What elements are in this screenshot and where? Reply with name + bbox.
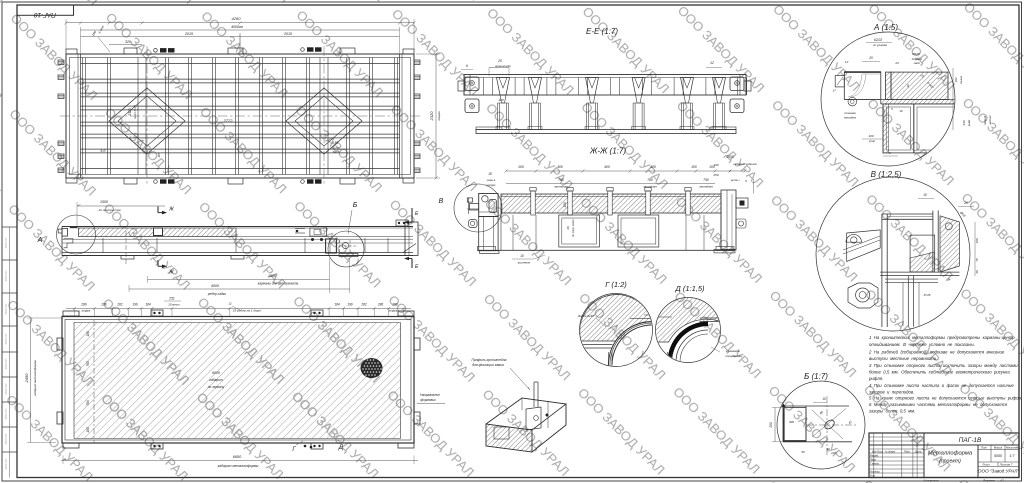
svg-text:2320: 2320 <box>429 111 434 122</box>
svg-text:б=45: б=45 <box>924 293 931 297</box>
svg-text:стенная: стенная <box>844 111 856 115</box>
svg-text:Г (1:2): Г (1:2) <box>605 280 627 289</box>
svg-text:А (1:5): А (1:5) <box>873 23 898 32</box>
svg-text:Разраб.: Разраб. <box>870 455 879 458</box>
svg-text:2450: 2450 <box>24 373 29 384</box>
svg-text:320: 320 <box>125 40 131 44</box>
svg-text:10 мест: 10 мест <box>168 303 180 307</box>
svg-text:ПАГ-18: ПАГ-18 <box>34 11 56 18</box>
svg-text:4000вн: 4000вн <box>231 25 243 29</box>
svg-text:Б: Б <box>353 202 358 209</box>
svg-text:Б (1:7): Б (1:7) <box>804 372 828 381</box>
svg-text:780: 780 <box>647 178 653 182</box>
svg-text:750: 750 <box>703 178 709 182</box>
svg-text:20: 20 <box>868 56 873 60</box>
svg-text:настил: настил <box>989 115 992 125</box>
svg-text:4000: 4000 <box>211 284 219 288</box>
svg-text:дата подп: дата подп <box>5 408 8 420</box>
svg-text:180: 180 <box>86 427 90 433</box>
svg-text:А: А <box>37 237 43 244</box>
svg-text:зазоров и перепадов.: зазоров и перепадов. <box>868 390 914 395</box>
svg-text:б=10: б=10 <box>333 150 340 154</box>
svg-text:Пров.: Пров. <box>870 459 877 462</box>
svg-text:5050: 5050 <box>994 454 1002 458</box>
svg-text:250: 250 <box>712 173 718 177</box>
svg-text:2000: 2000 <box>725 155 733 159</box>
svg-text:спецификац.: спецификац. <box>725 354 743 358</box>
svg-text:закладная: закладная <box>698 185 713 189</box>
svg-text:Утв.: Утв. <box>870 475 876 478</box>
svg-text:40: 40 <box>975 270 979 274</box>
svg-text:6-б: 6-б <box>101 149 106 153</box>
svg-text:2320: 2320 <box>128 108 132 117</box>
svg-text:2 На рабочей (собираемой) подо: 2 На рабочей (собираемой) подошве не доп… <box>868 350 1005 355</box>
svg-text:откидыванием. В чертеже условн: откидыванием. В чертеже условно не показ… <box>869 342 975 347</box>
svg-text:12: 12 <box>845 60 849 64</box>
svg-text:рифра: рифра <box>388 309 398 313</box>
svg-text:780: 780 <box>86 400 90 406</box>
svg-text:дата подп: дата подп <box>5 433 8 445</box>
svg-text:Е: Е <box>415 211 419 217</box>
svg-text:дата подп: дата подп <box>5 333 8 345</box>
svg-text:дата подп: дата подп <box>5 270 8 282</box>
svg-text:6 Между разъемными частями мет: 6 Между разъемными частями металлоформы … <box>869 402 1008 407</box>
svg-text:карманы для автозахвата: карманы для автозахвата <box>258 282 299 286</box>
svg-text:до центра тяж.: до центра тяж. <box>99 208 122 212</box>
svg-text:12: 12 <box>710 61 714 65</box>
svg-text:Лит: Лит <box>980 446 987 450</box>
svg-text:дата подп: дата подп <box>5 303 8 315</box>
svg-text:дата подп: дата подп <box>5 237 8 249</box>
svg-text:до опор. полос: до опор. полос <box>571 218 575 237</box>
svg-text:риме: риме <box>968 119 971 127</box>
svg-text:3 При стыковке опорного листа: 3 При стыковке опорного листа исключить … <box>869 363 1018 368</box>
svg-text:2772: 2772 <box>223 118 234 123</box>
svg-text:№ докум.: № докум. <box>885 451 896 454</box>
svg-text:габарит металлоформы: габарит металлоформы <box>218 464 259 468</box>
svg-text:400: 400 <box>557 165 563 169</box>
svg-text:4260: 4260 <box>232 16 242 21</box>
svg-text:180: 180 <box>86 331 90 337</box>
svg-text:Ø100: Ø100 <box>911 52 920 56</box>
svg-text:в размеры: в размеры <box>726 349 741 353</box>
svg-text:12: 12 <box>228 302 232 306</box>
svg-text:зазоры более 0,5 мм.: зазоры более 0,5 мм. <box>868 409 915 414</box>
svg-text:20: 20 <box>963 201 968 205</box>
svg-text:Дата: Дата <box>914 451 922 454</box>
svg-text:Лист: Лист <box>876 451 883 454</box>
svg-text:10: 10 <box>520 254 524 258</box>
svg-text:20: 20 <box>497 59 502 63</box>
svg-text:свед.: свед. <box>914 61 921 65</box>
svg-text:2015: 2015 <box>184 32 193 36</box>
svg-text:10: 10 <box>923 193 927 197</box>
svg-text:100: 100 <box>868 134 873 138</box>
svg-text:ООО "Завод УРАЛ": ООО "Завод УРАЛ" <box>978 469 1020 474</box>
svg-text:Н.контр.: Н.контр. <box>870 471 880 474</box>
svg-text:184: 184 <box>334 303 340 307</box>
svg-text:1 На кронштейнах металлоформы: 1 На кронштейнах металлоформы предусмотр… <box>869 335 1015 340</box>
svg-text:Подп.: Подп. <box>904 451 911 454</box>
svg-text:100: 100 <box>975 238 979 243</box>
svg-text:100: 100 <box>518 165 524 169</box>
svg-text:780: 780 <box>86 361 90 367</box>
svg-text:габарит изделия: габарит изделия <box>733 162 757 166</box>
svg-text:Копировал: Копировал <box>924 479 939 483</box>
svg-text:Профиль кронштейна: Профиль кронштейна <box>472 358 507 362</box>
svg-text:габарит: габарит <box>209 378 223 382</box>
svg-text:251: 251 <box>168 297 175 301</box>
svg-text:Т.контр.: Т.контр. <box>870 463 880 466</box>
svg-text:лист б=10: лист б=10 <box>133 105 137 120</box>
svg-text:286: 286 <box>377 303 384 307</box>
svg-text:286: 286 <box>80 303 87 307</box>
svg-text:добавир: добавир <box>912 57 923 61</box>
svg-text:дата подп: дата подп <box>5 458 8 470</box>
svg-text:усиление: усиление <box>517 261 531 265</box>
svg-text:16: 16 <box>899 109 903 113</box>
svg-text:Металлоформа: Металлоформа <box>928 451 973 457</box>
svg-text:общая: общая <box>437 111 441 121</box>
svg-text:100: 100 <box>498 98 503 102</box>
svg-text:10: 10 <box>822 397 826 401</box>
svg-text:30: 30 <box>826 447 830 451</box>
svg-text:дата подп: дата подп <box>5 383 8 395</box>
svg-text:286: 286 <box>391 303 398 307</box>
svg-text:40: 40 <box>566 226 570 230</box>
svg-text:62/22: 62/22 <box>874 38 882 42</box>
svg-text:120°: 120° <box>831 451 838 455</box>
svg-text:6000: 6000 <box>212 371 220 375</box>
svg-text:газы в: газы в <box>487 178 496 182</box>
svg-text:Масса: Масса <box>994 446 1003 450</box>
svg-text:24: 24 <box>946 278 951 282</box>
svg-text:150: 150 <box>563 202 567 208</box>
svg-text:Ж-Ж (1:7): Ж-Ж (1:7) <box>589 147 626 156</box>
svg-text:50: 50 <box>801 450 805 454</box>
svg-text:по зеркалу: по зеркалу <box>208 385 225 389</box>
svg-text:282: 282 <box>116 303 123 307</box>
svg-text:Направление: Направление <box>420 393 440 397</box>
svg-text:упорах: упорах <box>485 183 496 187</box>
svg-text:Фаска 8х45°: Фаска 8х45° <box>578 314 596 318</box>
svg-text:100: 100 <box>691 165 697 169</box>
svg-text:6: 6 <box>466 64 468 68</box>
svg-text:Масштаб: Масштаб <box>1006 447 1018 450</box>
svg-text:дата подп: дата подп <box>5 358 8 370</box>
svg-text:400: 400 <box>604 165 610 169</box>
svg-text:76: 76 <box>975 258 979 262</box>
svg-text:196: 196 <box>347 303 353 307</box>
svg-text:6650: 6650 <box>233 455 242 459</box>
svg-text:24: 24 <box>894 61 899 65</box>
svg-text:200: 200 <box>769 422 773 429</box>
svg-text:выступы местные неровности.: выступы местные неровности. <box>869 356 937 361</box>
svg-text:Е-Е (1:7): Е-Е (1:7) <box>586 27 618 36</box>
svg-text:4 При стыковке листа настила о: 4 При стыковке листа настила о фасок не … <box>869 383 1014 388</box>
svg-text:25 ребер на 1 борт: 25 ребер на 1 борт <box>232 309 262 313</box>
svg-text:Листов 7: Листов 7 <box>999 463 1013 467</box>
svg-text:1600: 1600 <box>268 274 276 278</box>
svg-text:габарит металлоформы: габарит металлоформы <box>33 359 37 396</box>
svg-text:40: 40 <box>906 84 910 88</box>
svg-text:ПАГ-1В: ПАГ-1В <box>959 437 982 444</box>
svg-text:рифра: рифра <box>81 309 91 313</box>
svg-text:240: 240 <box>962 120 966 126</box>
svg-text:182: 182 <box>954 77 958 82</box>
svg-text:4,50: 4,50 <box>332 141 338 145</box>
svg-text:2015: 2015 <box>283 32 292 36</box>
svg-text:305: 305 <box>157 152 161 157</box>
svg-text:формовки: формовки <box>420 398 435 402</box>
svg-text:рифля.: рифля. <box>868 376 883 381</box>
svg-text:А2: А2 <box>999 479 1004 483</box>
svg-text:накладка: накладка <box>844 116 856 120</box>
svg-text:подроб.: подроб. <box>983 115 987 125</box>
svg-text:Е: Е <box>415 264 419 270</box>
svg-text:Д (1:1,5): Д (1:1,5) <box>674 284 705 293</box>
svg-text:100: 100 <box>713 163 718 167</box>
svg-text:1500: 1500 <box>100 200 108 204</box>
svg-text:Д: Д <box>338 445 344 451</box>
svg-text:(проект): (проект) <box>939 459 961 465</box>
svg-text:свыше: свыше <box>960 75 963 84</box>
svg-text:упор: упор <box>868 139 875 143</box>
svg-text:286: 286 <box>100 303 107 307</box>
svg-text:для фиксации замка: для фиксации замка <box>472 363 504 367</box>
svg-text:196: 196 <box>132 303 138 307</box>
svg-text:780: 780 <box>558 178 564 182</box>
svg-text:282: 282 <box>360 303 367 307</box>
svg-text:более 0,5 мм. Обеспечить соблю: более 0,5 мм. Обеспечить соблюдение геом… <box>869 370 1010 375</box>
svg-text:400: 400 <box>650 165 656 169</box>
svg-text:5 На краях опорного листа не д: 5 На краях опорного листа не допускаются… <box>869 396 1022 401</box>
svg-text:Лист: Лист <box>981 463 990 467</box>
svg-text:по упорам: по упорам <box>873 43 887 47</box>
svg-text:закладная: закладная <box>553 185 568 189</box>
svg-text:кронштейн: кронштейн <box>495 64 511 68</box>
svg-text:18: 18 <box>488 172 492 176</box>
svg-text:В: В <box>439 198 444 205</box>
svg-text:300: 300 <box>789 420 794 424</box>
svg-text:ребер садки: ребер садки <box>207 292 226 296</box>
svg-text:17: 17 <box>833 88 837 92</box>
svg-text:уклон i: уклон i <box>730 178 740 182</box>
svg-text:184: 184 <box>145 303 151 307</box>
svg-text:Формат: Формат <box>983 479 995 483</box>
svg-text:В (1:2,5): В (1:2,5) <box>871 170 902 179</box>
